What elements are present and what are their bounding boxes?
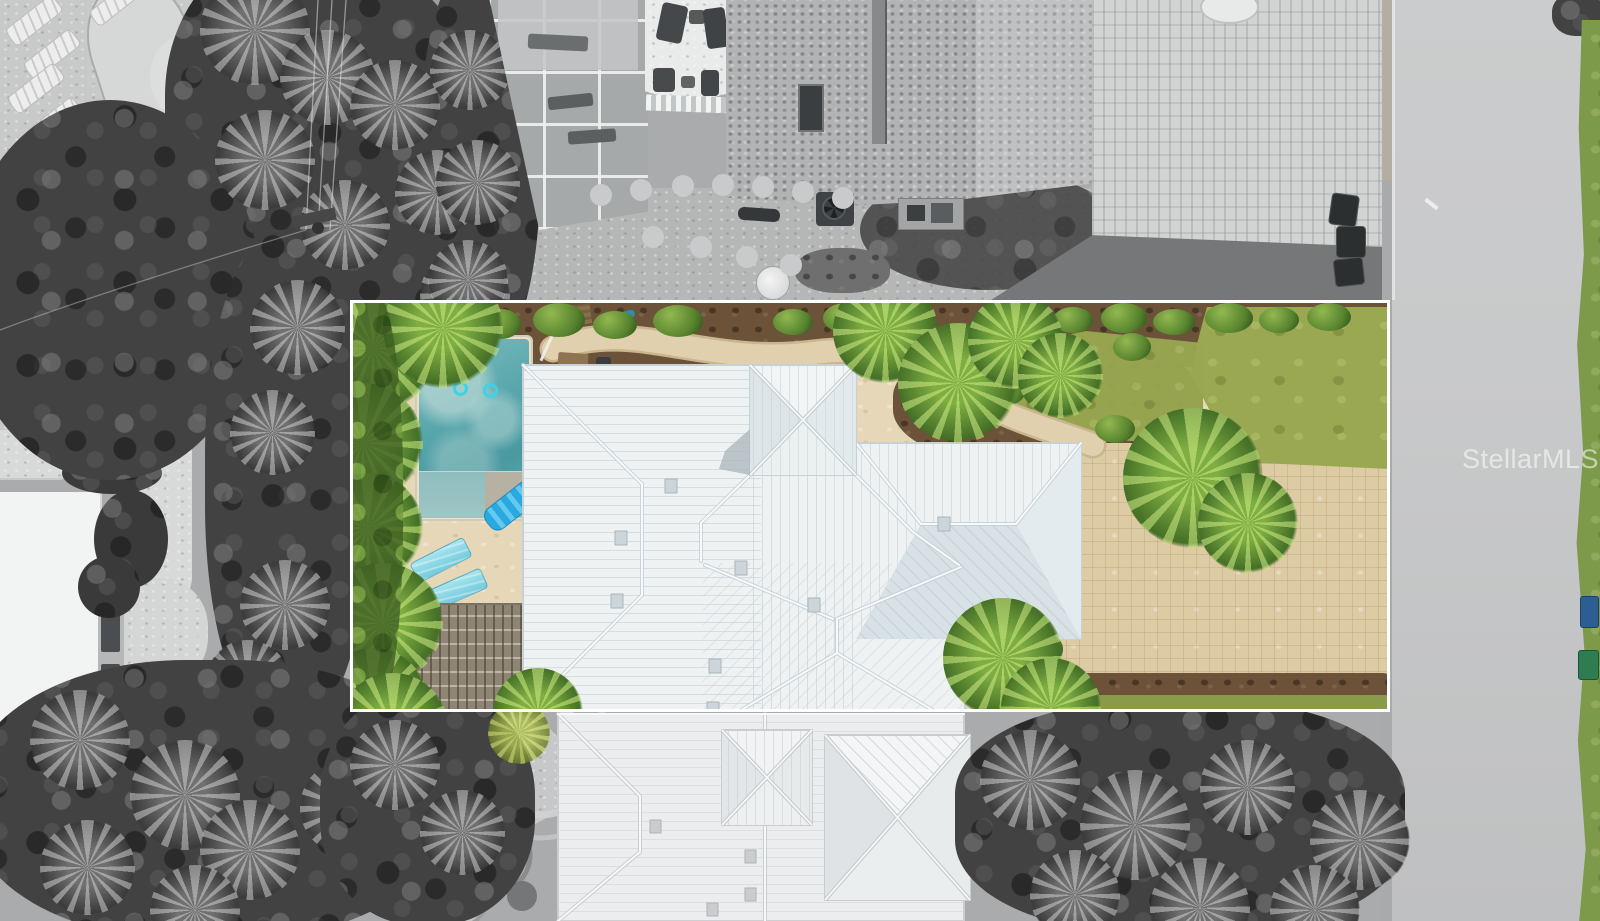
palm-tree (1018, 333, 1103, 418)
utility-pole (291, 208, 337, 234)
palm-tree (1198, 473, 1298, 573)
subject-parcel (350, 300, 1390, 712)
watermark: StellarMLS (1462, 444, 1599, 475)
aerial-photo: StellarMLS (0, 0, 1600, 921)
